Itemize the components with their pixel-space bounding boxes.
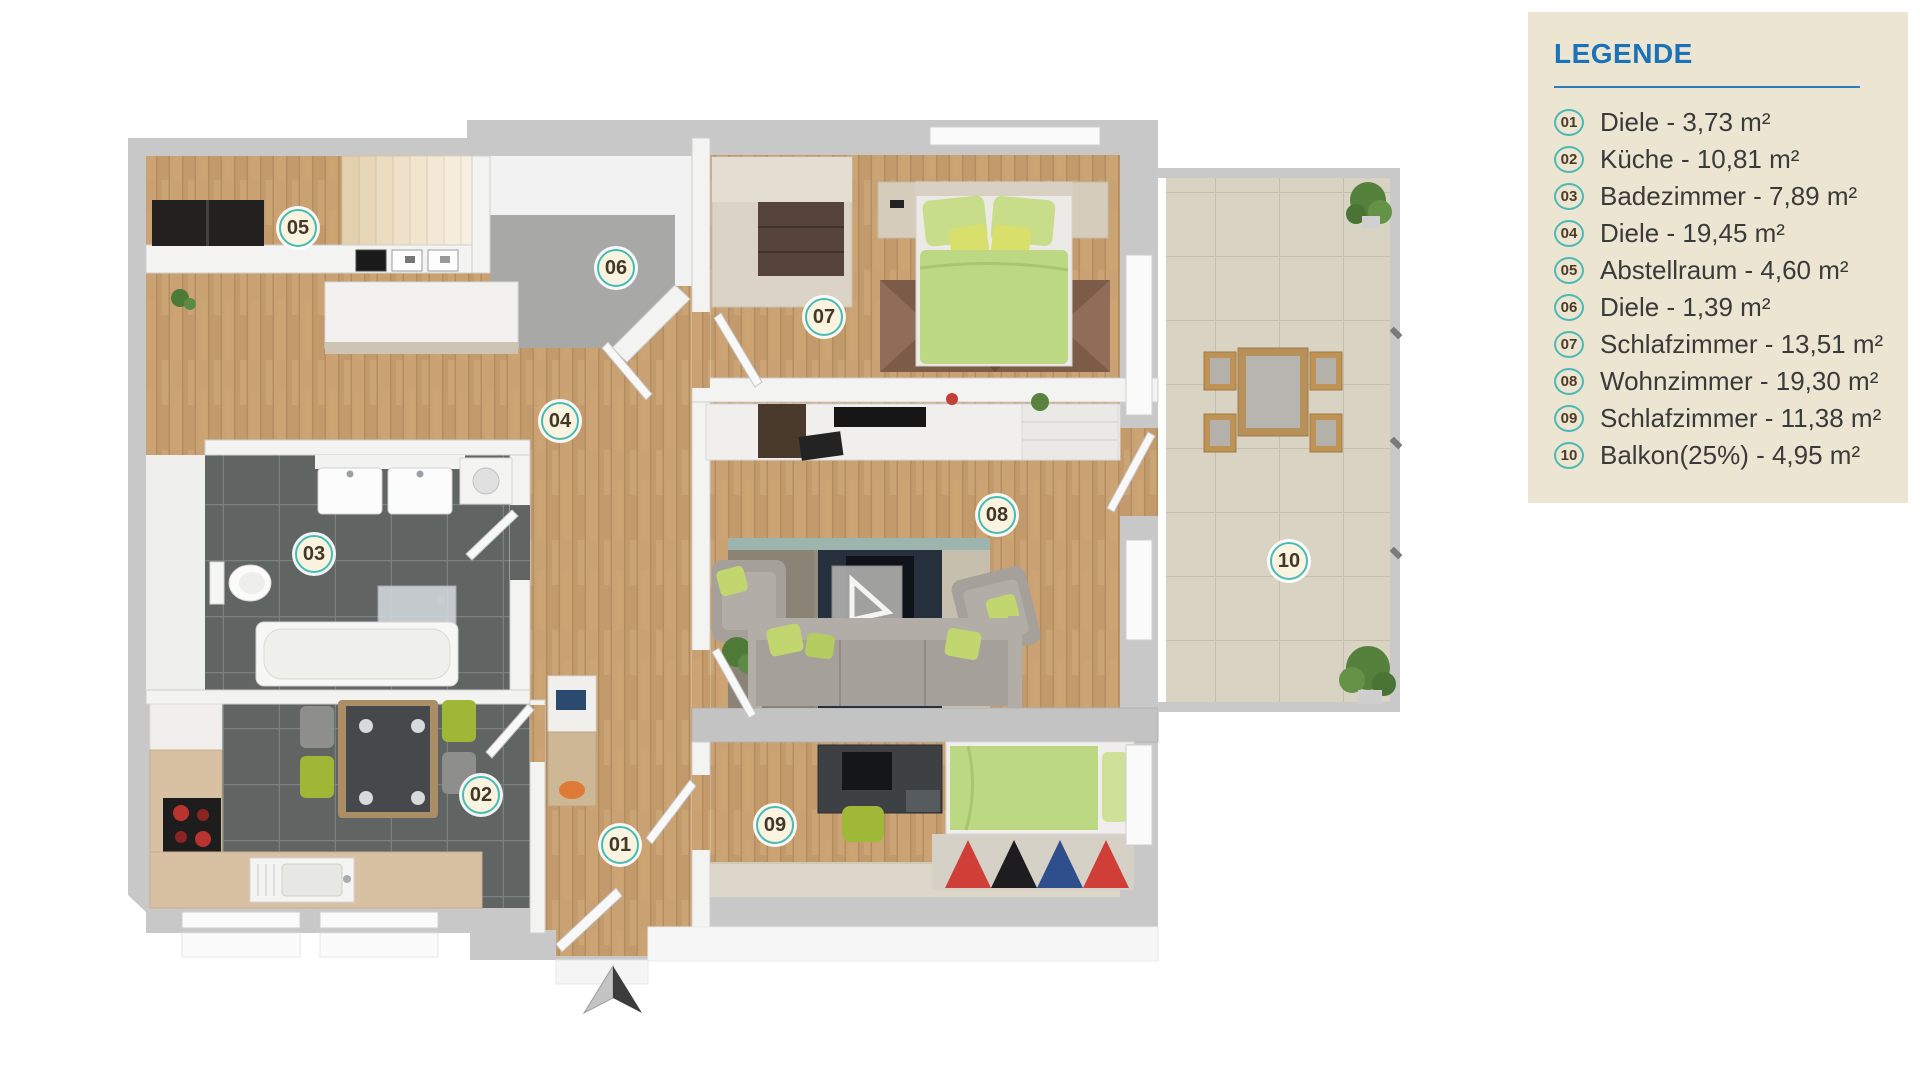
legend-item-label: Diele - 3,73 m² xyxy=(1600,107,1771,138)
room-marker-03: 03 xyxy=(295,535,333,573)
room-marker-number: 01 xyxy=(609,834,631,857)
legend-item-09: 09 Schlafzimmer - 11,38 m² xyxy=(1554,400,1884,437)
legend-item-label: Schlafzimmer - 11,38 m² xyxy=(1600,403,1881,434)
legend-item-number-badge: 09 xyxy=(1554,405,1584,432)
legend-items: 01 Diele - 3,73 m² 02 Küche - 10,81 m² 0… xyxy=(1554,104,1884,474)
room-marker-02: 02 xyxy=(462,776,500,814)
legend-item-label: Abstellraum - 4,60 m² xyxy=(1600,255,1849,286)
legend-item-10: 10 Balkon(25%) - 4,95 m² xyxy=(1554,437,1884,474)
legend-item-02: 02 Küche - 10,81 m² xyxy=(1554,141,1884,178)
room-marker-06: 06 xyxy=(597,249,635,287)
room-marker-01: 01 xyxy=(601,826,639,864)
legend-item-number-badge: 07 xyxy=(1554,331,1584,358)
room-marker-number: 02 xyxy=(470,784,492,807)
room-marker-04: 04 xyxy=(541,402,579,440)
legend-item-08: 08 Wohnzimmer - 19,30 m² xyxy=(1554,363,1884,400)
room-marker-number: 06 xyxy=(605,257,627,280)
legend-item-label: Balkon(25%) - 4,95 m² xyxy=(1600,440,1860,471)
legend-item-04: 04 Diele - 19,45 m² xyxy=(1554,215,1884,252)
closet-zone xyxy=(490,156,692,215)
legend-item-number-badge: 03 xyxy=(1554,183,1584,210)
room-marker-number: 04 xyxy=(549,410,571,433)
legend-item-number-badge: 01 xyxy=(1554,109,1584,136)
room-marker-07: 07 xyxy=(805,298,843,336)
legend-item-05: 05 Abstellraum - 4,60 m² xyxy=(1554,252,1884,289)
room-marker-05: 05 xyxy=(279,209,317,247)
legend-item-label: Wohnzimmer - 19,30 m² xyxy=(1600,366,1878,397)
room-marker-number: 08 xyxy=(986,504,1008,527)
legend-item-number-badge: 06 xyxy=(1554,294,1584,321)
legend-item-number-badge: 02 xyxy=(1554,146,1584,173)
balcony xyxy=(1158,168,1402,712)
legend-item-03: 03 Badezimmer - 7,89 m² xyxy=(1554,178,1884,215)
room-marker-number: 07 xyxy=(813,306,835,329)
shaft xyxy=(146,455,205,690)
legend-item-number-badge: 08 xyxy=(1554,368,1584,395)
legend-item-06: 06 Diele - 1,39 m² xyxy=(1554,289,1884,326)
room-marker-number: 10 xyxy=(1278,550,1300,573)
room-marker-09: 09 xyxy=(756,806,794,844)
staircase xyxy=(342,156,478,245)
legend-item-number-badge: 10 xyxy=(1554,442,1584,469)
legend-item-01: 01 Diele - 3,73 m² xyxy=(1554,104,1884,141)
legend-item-label: Badezimmer - 7,89 m² xyxy=(1600,181,1857,212)
legend-title: LEGENDE xyxy=(1554,38,1884,70)
legend-item-07: 07 Schlafzimmer - 13,51 m² xyxy=(1554,326,1884,363)
hall-floor-upper xyxy=(530,455,692,704)
room-marker-10: 10 xyxy=(1270,542,1308,580)
legend-item-label: Diele - 19,45 m² xyxy=(1600,218,1785,249)
storage-cabinet xyxy=(152,200,264,246)
legend-item-number-badge: 05 xyxy=(1554,257,1584,284)
room-marker-number: 09 xyxy=(764,814,786,837)
legend-panel: LEGENDE 01 Diele - 3,73 m² 02 Küche - 10… xyxy=(1528,12,1908,503)
legend-item-number-badge: 04 xyxy=(1554,220,1584,247)
legend-divider xyxy=(1554,86,1860,88)
hall-cabinet xyxy=(548,676,596,806)
legend-item-label: Schlafzimmer - 13,51 m² xyxy=(1600,329,1883,360)
legend-item-label: Diele - 1,39 m² xyxy=(1600,292,1771,323)
room-marker-08: 08 xyxy=(978,496,1016,534)
room-marker-number: 05 xyxy=(287,217,309,240)
room-marker-number: 03 xyxy=(303,543,325,566)
legend-item-label: Küche - 10,81 m² xyxy=(1600,144,1799,175)
floor-plan-page: 01 02 03 04 05 06 07 xyxy=(0,0,1920,1080)
